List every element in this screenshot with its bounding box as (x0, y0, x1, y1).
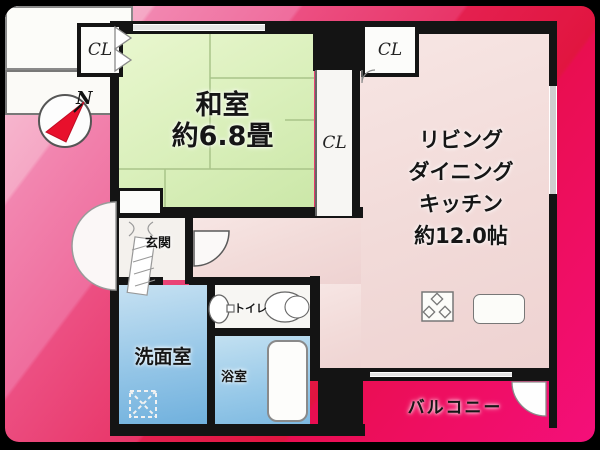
washitsu-size: 約6.8畳 (155, 121, 290, 152)
ldk-label-line3: キッチン (403, 188, 519, 220)
wall-corridor-right (189, 277, 320, 285)
closet-topleft-label: CL (88, 40, 112, 60)
wash-basin-icon (207, 292, 235, 326)
entrance-door-arc-icon (71, 200, 117, 292)
washroom-label: 洗面室 (123, 342, 203, 369)
closet-door-arc-icon (361, 69, 377, 85)
balcony-sliding-window (370, 372, 512, 377)
ldk-label: リビング ダイニング キッチン 約12.0帖 (403, 124, 519, 252)
washitsu-window (133, 24, 265, 31)
pillar (313, 21, 363, 71)
kitchen-sink-icon (473, 294, 525, 324)
ldk-label-line1: リビング (403, 124, 519, 156)
wall-right (549, 21, 557, 428)
ldk-label-line2: ダイニング (403, 156, 519, 188)
bathtub-icon (267, 340, 308, 422)
wall-bottom (110, 424, 365, 436)
genkan-door-arc-icon (193, 230, 231, 268)
closet-topright-label: CL (378, 40, 402, 60)
bifold-door-icon (113, 26, 133, 72)
genkan-label: 玄関 (145, 232, 171, 251)
balcony-label: バルコニー (395, 393, 515, 418)
toilet-icon (263, 289, 311, 327)
closet-tall-label: CL (322, 133, 346, 153)
genkan-storage (117, 188, 163, 216)
washitsu-label: 和室 約6.8畳 (155, 90, 290, 152)
washing-machine-icon (128, 389, 158, 419)
bathroom-label: 浴室 (221, 366, 247, 385)
wall-genkan-right (185, 218, 193, 284)
floor-plan: CL CL CL (0, 0, 600, 450)
balcony-door-arc-icon (512, 382, 548, 418)
wall-toilet-bottom (208, 328, 320, 336)
north-label: N (76, 88, 92, 109)
closet-tall: CL (315, 70, 360, 216)
ldk-label-line4: 約12.0帖 (403, 220, 519, 252)
ldk-strip (316, 284, 361, 380)
ldk-window (549, 86, 557, 194)
stove-icon (421, 291, 455, 323)
washitsu-name: 和室 (155, 90, 290, 121)
wall-bath-right (310, 276, 320, 381)
wall-balcony-left-block (318, 378, 363, 428)
toilet-label: トイレ (234, 300, 267, 316)
floor-plan-photo: CL CL CL (5, 6, 595, 442)
